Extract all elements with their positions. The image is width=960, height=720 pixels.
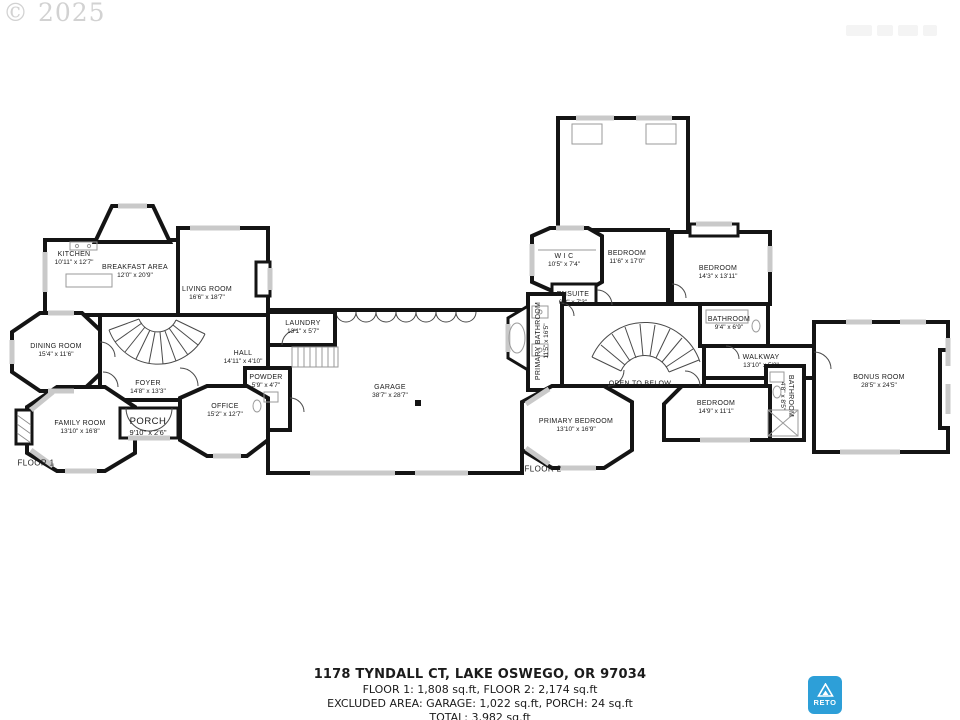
reto-triangle-icon <box>817 683 834 697</box>
room-label-porch: PORCH 9'10" x 2'6" <box>130 416 167 438</box>
room-label-dining-room: DINING ROOM 15'4" x 11'6" <box>30 342 82 360</box>
room-label-bathroom-2: BATHROOM 4'8" x 8'5" <box>777 375 795 417</box>
room-label-office: OFFICE 15'2" x 12'7" <box>207 402 243 420</box>
room-label-primary-bathroom: PRIMARY BATHROOM 11'5" x 16'5" <box>534 302 552 380</box>
room-label-powder: POWDER 5'9" x 4'7" <box>249 373 282 391</box>
room-label-wic: W I C 10'5" x 7'4" <box>548 252 580 270</box>
room-label-open-to-below: OPEN TO BELOW <box>609 379 671 388</box>
room-label-family-room: FAMILY ROOM 13'10" x 16'8" <box>54 419 105 437</box>
room-label-bonus-room: BONUS ROOM 28'5" x 24'5" <box>853 373 905 391</box>
room-label-ensuite: ENSUITE 6'3" x 7'3" <box>557 290 589 308</box>
room-label-laundry: LAUNDRY 13'1" x 5'7" <box>285 319 320 337</box>
floor-plan-drawing <box>0 0 960 720</box>
reto-logo-text: RETO <box>813 698 836 707</box>
floor-2-tag: FLOOR 2 <box>524 465 561 474</box>
room-label-foyer: FOYER 14'8" x 13'3" <box>130 379 166 397</box>
room-label-bedroom-2: BEDROOM 14'3" x 13'11" <box>699 264 738 282</box>
room-label-living-room: LIVING ROOM 16'6" x 18'7" <box>182 285 232 303</box>
room-label-garage: GARAGE 38'7" x 28'7" <box>372 383 408 401</box>
room-label-bathroom: BATHROOM 9'4" x 6'9" <box>708 315 750 333</box>
floor-1-tag: FLOOR 1 <box>17 459 54 468</box>
reto-logo: RETO <box>808 676 842 714</box>
floor-plan-page: © 2025 <box>0 0 960 720</box>
room-label-primary-bedroom: PRIMARY BEDROOM 13'10" x 16'9" <box>539 417 613 435</box>
room-label-hall: HALL 14'11" x 4'10" <box>224 349 263 367</box>
room-label-bedroom-1: BEDROOM 11'6" x 17'0" <box>608 249 646 267</box>
room-label-kitchen: KITCHEN 10'11" x 12'7" <box>55 250 94 268</box>
room-label-walkway: WALKWAY 13'10" x 5'2" <box>743 353 780 371</box>
room-label-breakfast-area: BREAKFAST AREA 12'0" x 20'9" <box>102 263 168 281</box>
room-label-bedroom-3: BEDROOM 14'9" x 11'1" <box>697 399 735 417</box>
